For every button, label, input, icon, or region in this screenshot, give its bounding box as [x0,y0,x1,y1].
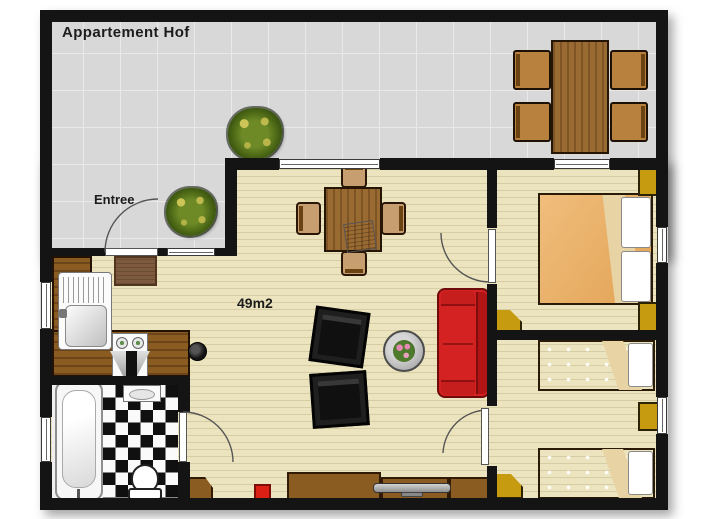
bathroom-door [179,412,187,462]
entrance-label: Entree [94,192,134,207]
plan-title: Appartement Hof [62,24,190,41]
bedroom-door [481,408,489,465]
area-label: 49m2 [237,295,273,311]
door-swing-arcs [0,0,713,519]
floor-plan: Appartement Hof Entree 49m2 [0,0,713,519]
entrance-door [105,248,158,256]
bedroom-door [488,229,496,283]
